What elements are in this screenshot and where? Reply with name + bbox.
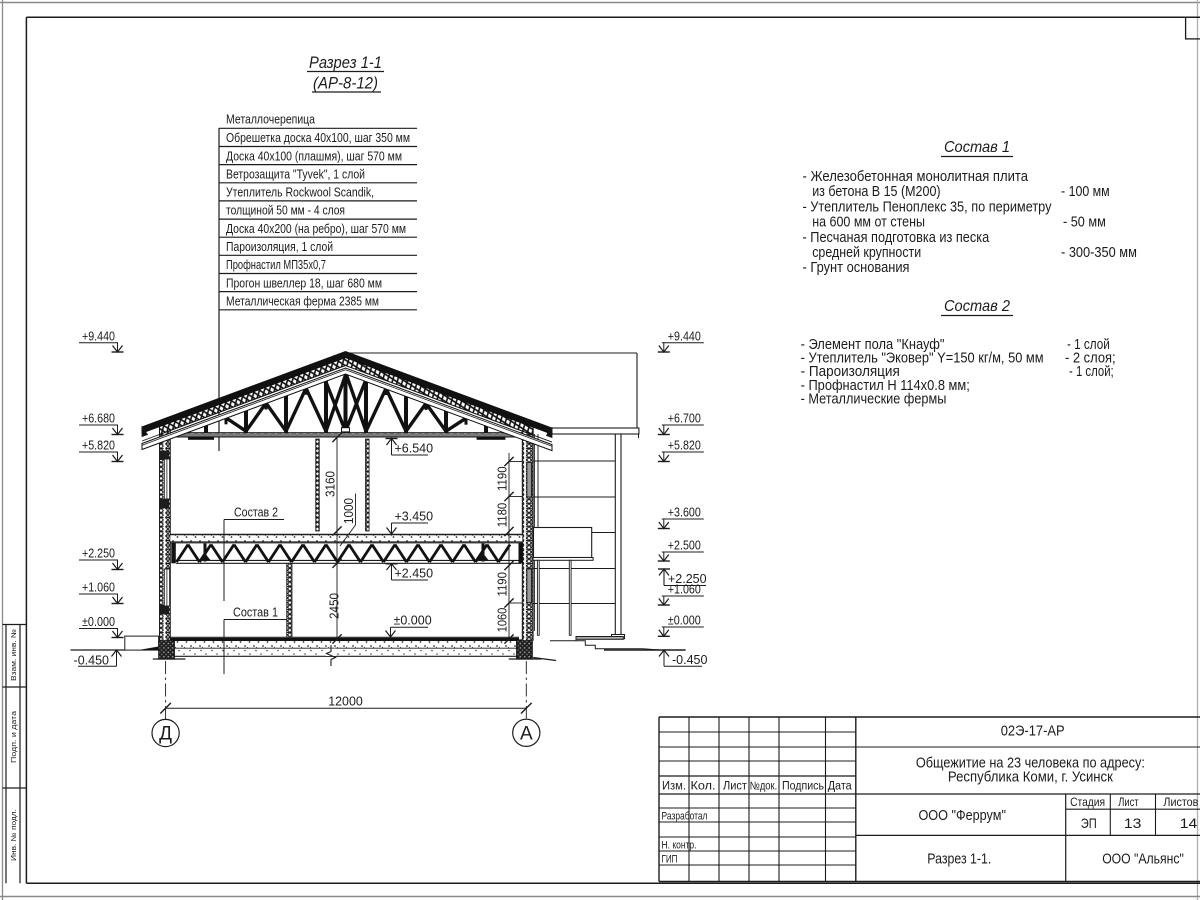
svg-text:±0.000: ±0.000 bbox=[394, 614, 432, 628]
svg-text:- Железобетонная монолитная п: - Железобетонная монолитная плита bbox=[803, 169, 1029, 185]
svg-text:+2.500: +2.500 bbox=[668, 539, 701, 553]
svg-text:+9.440: +9.440 bbox=[82, 329, 115, 343]
svg-text:3160: 3160 bbox=[324, 471, 338, 497]
svg-text:+6.700: +6.700 bbox=[668, 412, 701, 426]
svg-text:на 600 мм от стены: на 600 мм от стены bbox=[812, 215, 925, 231]
svg-text:+2.450: +2.450 bbox=[395, 567, 434, 581]
svg-text:- Утеплитель Пеноплекс 35, по: - Утеплитель Пеноплекс 35, по периметру bbox=[803, 200, 1053, 216]
svg-text:Состав 2: Состав 2 bbox=[944, 298, 1010, 315]
svg-text:(АР-8-12): (АР-8-12) bbox=[313, 74, 378, 93]
svg-text:№док.: №док. bbox=[750, 781, 778, 793]
svg-text:±0.000: ±0.000 bbox=[668, 614, 701, 628]
svg-text:14: 14 bbox=[1180, 815, 1198, 831]
svg-text:- 50 мм: - 50 мм bbox=[1063, 215, 1106, 231]
svg-text:Дата: Дата bbox=[828, 781, 853, 793]
svg-text:ООО "Феррум": ООО "Феррум" bbox=[918, 807, 1006, 824]
svg-text:02Э-17-АР: 02Э-17-АР bbox=[1001, 723, 1065, 740]
svg-text:- Металлические фермы: - Металлические фермы bbox=[801, 391, 947, 407]
svg-text:Подп. и дата: Подп. и дата bbox=[11, 711, 18, 763]
svg-text:Состав 1: Состав 1 bbox=[233, 605, 278, 620]
svg-text:+9.440: +9.440 bbox=[668, 329, 701, 343]
svg-text:Инв. № подл.: Инв. № подл. bbox=[11, 809, 18, 861]
svg-text:-0.450: -0.450 bbox=[672, 653, 707, 667]
svg-text:Лист: Лист bbox=[1118, 795, 1139, 809]
svg-text:+6.680: +6.680 bbox=[82, 412, 115, 426]
svg-text:Республика Коми, г. Усинск: Республика Коми, г. Усинск bbox=[948, 770, 1114, 786]
svg-text:+1.060: +1.060 bbox=[668, 583, 701, 597]
svg-text:Состав 2: Состав 2 bbox=[234, 505, 278, 520]
svg-text:+3.600: +3.600 bbox=[668, 506, 701, 520]
svg-text:12000: 12000 bbox=[328, 695, 363, 709]
svg-text:Взам. инв. №: Взам. инв. № bbox=[11, 629, 18, 681]
svg-text:Разрез 1-1: Разрез 1-1 bbox=[309, 53, 382, 72]
svg-text:1180: 1180 bbox=[496, 503, 510, 528]
svg-text:+6.540: +6.540 bbox=[395, 442, 434, 456]
svg-text:1190: 1190 bbox=[496, 572, 510, 597]
svg-text:+5.820: +5.820 bbox=[668, 439, 701, 453]
svg-text:Листов: Листов bbox=[1163, 795, 1198, 809]
svg-text:Профнастил МП35х0,7: Профнастил МП35х0,7 bbox=[226, 257, 326, 272]
svg-text:-0.450: -0.450 bbox=[74, 654, 109, 668]
svg-text:±0.000: ±0.000 bbox=[82, 615, 115, 629]
svg-text:+3.450: +3.450 bbox=[395, 510, 434, 524]
svg-text:- 300-350 мм: - 300-350 мм bbox=[1061, 245, 1137, 261]
svg-text:Пароизоляция, 1 слой: Пароизоляция, 1 слой bbox=[226, 239, 333, 254]
svg-text:Обрешетка доска 40х100, шаг 35: Обрешетка доска 40х100, шаг 350 мм bbox=[226, 130, 410, 145]
svg-text:Состав 1: Состав 1 bbox=[944, 139, 1010, 156]
svg-text:Прогон швеллер 18, шаг 680 мм: Прогон швеллер 18, шаг 680 мм bbox=[226, 275, 382, 290]
svg-text:А: А bbox=[520, 724, 533, 745]
svg-text:средней крупности: средней крупности bbox=[812, 245, 921, 261]
svg-text:ГИП: ГИП bbox=[662, 854, 678, 866]
svg-text:+2.250: +2.250 bbox=[82, 547, 115, 561]
svg-text:+5.820: +5.820 bbox=[82, 439, 115, 453]
svg-text:1190: 1190 bbox=[496, 466, 510, 491]
svg-text:Кол.: Кол. bbox=[691, 781, 716, 793]
svg-text:- Грунт основания: - Грунт основания bbox=[803, 260, 910, 276]
svg-text:Д: Д bbox=[159, 724, 172, 745]
svg-text:- 1 слой;: - 1 слой; bbox=[1069, 364, 1114, 380]
svg-text:13: 13 bbox=[1124, 815, 1142, 831]
svg-text:Ветрозащита "Tyvek", 1 слой: Ветрозащита "Tyvek", 1 слой bbox=[226, 166, 365, 181]
svg-text:+1.060: +1.060 bbox=[82, 581, 115, 595]
svg-text:Утеплитель Rockwool Scandik,: Утеплитель Rockwool Scandik, bbox=[226, 185, 374, 200]
svg-text:ЭП: ЭП bbox=[1081, 815, 1097, 831]
svg-text:Разрез 1-1.: Разрез 1-1. bbox=[927, 851, 991, 868]
svg-text:Подпись: Подпись bbox=[782, 781, 824, 793]
svg-text:Металлическая ферма 2385 мм: Металлическая ферма 2385 мм bbox=[226, 293, 379, 308]
svg-text:- 100 мм: - 100 мм bbox=[1061, 184, 1110, 200]
svg-text:Доска 40х200 (на ребро), шаг 5: Доска 40х200 (на ребро), шаг 570 мм bbox=[226, 221, 406, 236]
svg-text:Лист: Лист bbox=[723, 781, 748, 793]
svg-text:ООО "Альянс": ООО "Альянс" bbox=[1102, 851, 1184, 868]
svg-text:Разработал: Разработал bbox=[662, 811, 708, 823]
svg-text:1000: 1000 bbox=[342, 498, 356, 524]
svg-text:толщиной 50 мм - 4 слоя: толщиной 50 мм - 4 слоя bbox=[226, 203, 345, 218]
svg-text:из бетона В 15 (М200): из бетона В 15 (М200) bbox=[812, 184, 940, 200]
svg-text:- Песчаная подготовка из песка: - Песчаная подготовка из песка bbox=[803, 230, 990, 246]
svg-text:1060: 1060 bbox=[496, 608, 510, 633]
svg-text:Металлочерепица: Металлочерепица bbox=[226, 112, 316, 127]
svg-text:Изм.: Изм. bbox=[662, 781, 686, 793]
svg-text:2450: 2450 bbox=[328, 593, 342, 619]
svg-text:Доска 40х100 (плашмя), шаг 570: Доска 40х100 (плашмя), шаг 570 мм bbox=[226, 148, 402, 163]
svg-text:Стадия: Стадия bbox=[1070, 795, 1105, 809]
svg-text:Н. контр.: Н. контр. bbox=[662, 840, 697, 852]
